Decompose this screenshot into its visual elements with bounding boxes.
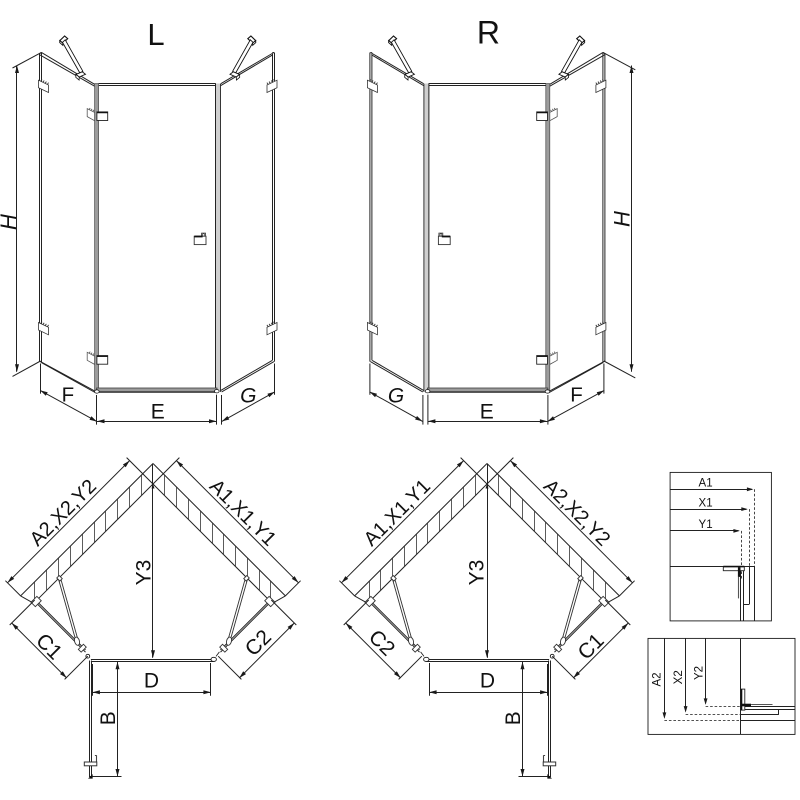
svg-text:G: G [388,385,404,408]
svg-text:A1,X1,Y1: A1,X1,Y1 [360,475,435,550]
svg-text:D: D [144,670,159,693]
svg-text:Y3: Y3 [132,560,155,586]
svg-text:A1: A1 [699,477,713,489]
svg-text:C1: C1 [31,629,66,664]
svg-text:X2: X2 [673,670,685,684]
svg-text:C2: C2 [241,625,276,660]
svg-text:F: F [570,384,583,407]
svg-text:A2,X2,Y2: A2,X2,Y2 [539,475,614,550]
svg-text:C2: C2 [364,625,399,660]
svg-text:X1: X1 [699,497,713,509]
svg-text:E: E [480,400,494,423]
svg-text:A1,X1,Y1: A1,X1,Y1 [205,475,280,550]
svg-text:D: D [480,670,495,693]
svg-text:H: H [0,214,21,230]
svg-text:B: B [502,711,525,725]
svg-text:F: F [62,384,75,407]
svg-text:A2,X2,Y2: A2,X2,Y2 [26,475,101,550]
svg-text:Y3: Y3 [465,560,488,586]
svg-text:Y2: Y2 [693,666,705,680]
svg-text:H: H [609,211,634,227]
svg-text:A2: A2 [651,672,663,686]
svg-text:E: E [151,400,165,423]
svg-text:L: L [147,17,164,52]
svg-text:G: G [240,385,256,408]
svg-text:B: B [97,711,120,725]
svg-text:Y1: Y1 [699,519,713,531]
svg-text:C1: C1 [573,629,608,664]
svg-text:R: R [477,15,500,51]
